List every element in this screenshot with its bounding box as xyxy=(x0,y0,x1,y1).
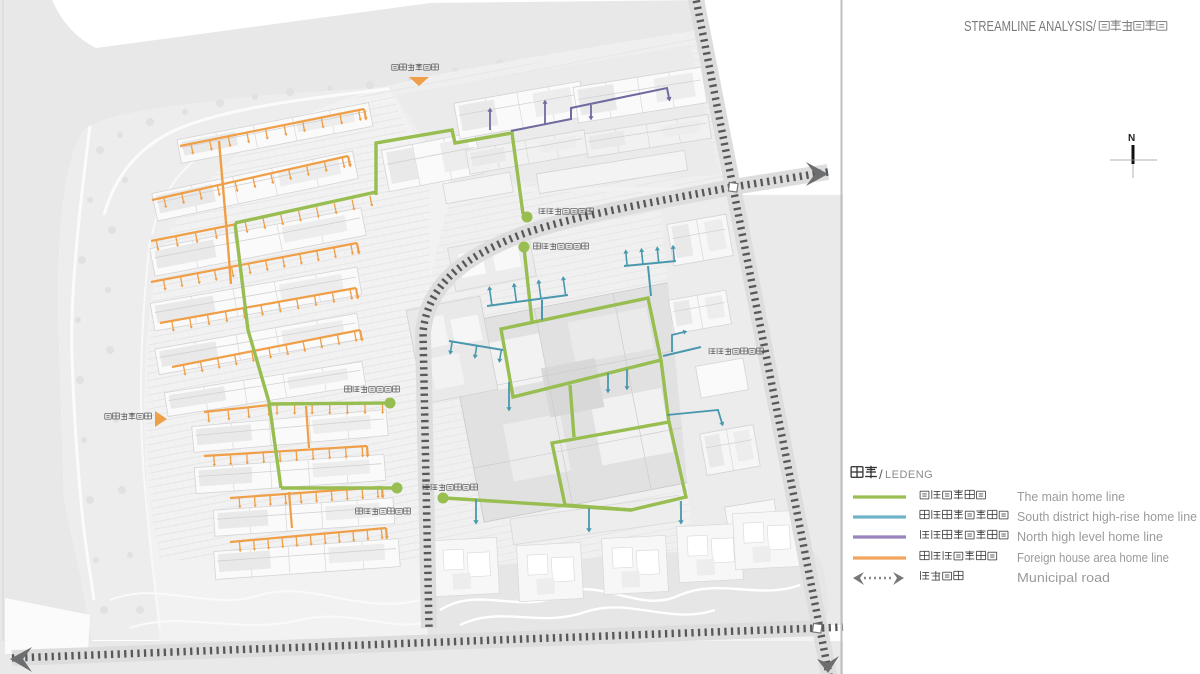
svg-text:STREAMLINE ANALYSIS/: STREAMLINE ANALYSIS/ xyxy=(964,18,1097,35)
svg-text:/: / xyxy=(879,467,883,482)
svg-text:Municipal road: Municipal road xyxy=(1017,571,1110,585)
svg-text:N: N xyxy=(1128,133,1135,144)
svg-text:Foreign house area home line: Foreign house area home line xyxy=(1017,551,1169,565)
svg-text:The main home line: The main home line xyxy=(1017,490,1125,504)
svg-text:South district high-rise home: South district high-rise home line xyxy=(1017,510,1197,524)
svg-text:North high level home line: North high level home line xyxy=(1017,530,1163,544)
svg-text:LEDENG: LEDENG xyxy=(885,469,933,481)
